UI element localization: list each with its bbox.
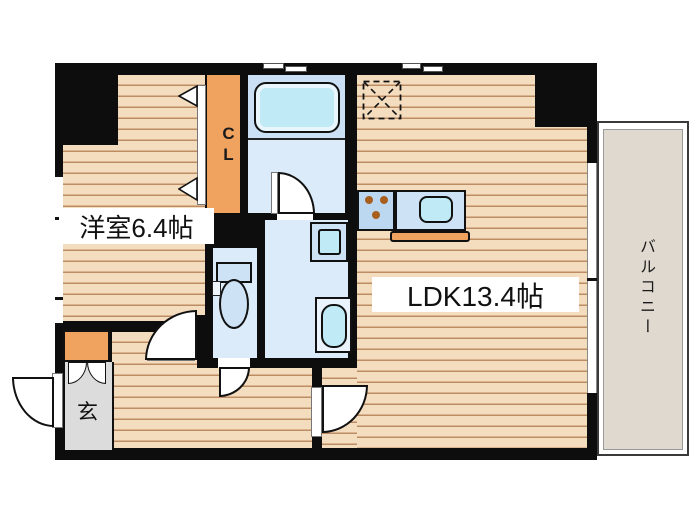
corner-pillar-northwest (63, 75, 118, 145)
ldk-vent-window (402, 63, 421, 69)
ldk-label: LDK13.4帖 (372, 277, 579, 312)
floor-plan: バルコニー 洋室6.4帖 LDK13.4帖 CL 玄 (0, 0, 700, 525)
vanity-sink (321, 304, 347, 348)
entrance-door-swing (12, 377, 54, 427)
kitchen-sink (419, 196, 453, 223)
closet-folding-door (197, 85, 206, 205)
closet-door-triangle-icon (178, 85, 198, 207)
ldk-door-leaf (311, 387, 322, 437)
west-window (55, 175, 63, 325)
west-window-divider2 (55, 297, 63, 300)
stove-burner-icon (380, 196, 388, 204)
shoe-cabinet (63, 330, 110, 362)
stove-burner-icon (372, 211, 380, 219)
bathtub-room-divider (248, 138, 345, 140)
balcony-label: バルコニー (627, 238, 657, 362)
toilet-bowl (219, 279, 249, 329)
bathtub (254, 82, 340, 133)
ldk-vent-window2 (423, 66, 443, 72)
toilet-handle (212, 281, 221, 296)
balcony-window-divider (587, 278, 597, 281)
bathroom-vent-window (263, 63, 284, 69)
washing-machine-pan-inner (318, 229, 341, 255)
stove-burner-icon (365, 196, 373, 204)
corner-pillar-northeast (535, 63, 597, 127)
ldk-floor (357, 75, 587, 448)
bathroom-doorway (277, 213, 313, 220)
entrance-label: 玄 (77, 396, 101, 420)
western-room-door-jamb (197, 315, 205, 368)
bathroom-door-leaf (271, 172, 278, 214)
bathroom-vent-window2 (285, 66, 307, 72)
kitchen-base-cabinet (390, 231, 470, 242)
western-room-label: 洋室6.4帖 (59, 208, 214, 244)
closet-label: CL (208, 114, 238, 176)
entrance-step-line (112, 362, 114, 448)
refrigerator-space-icon (362, 80, 402, 120)
